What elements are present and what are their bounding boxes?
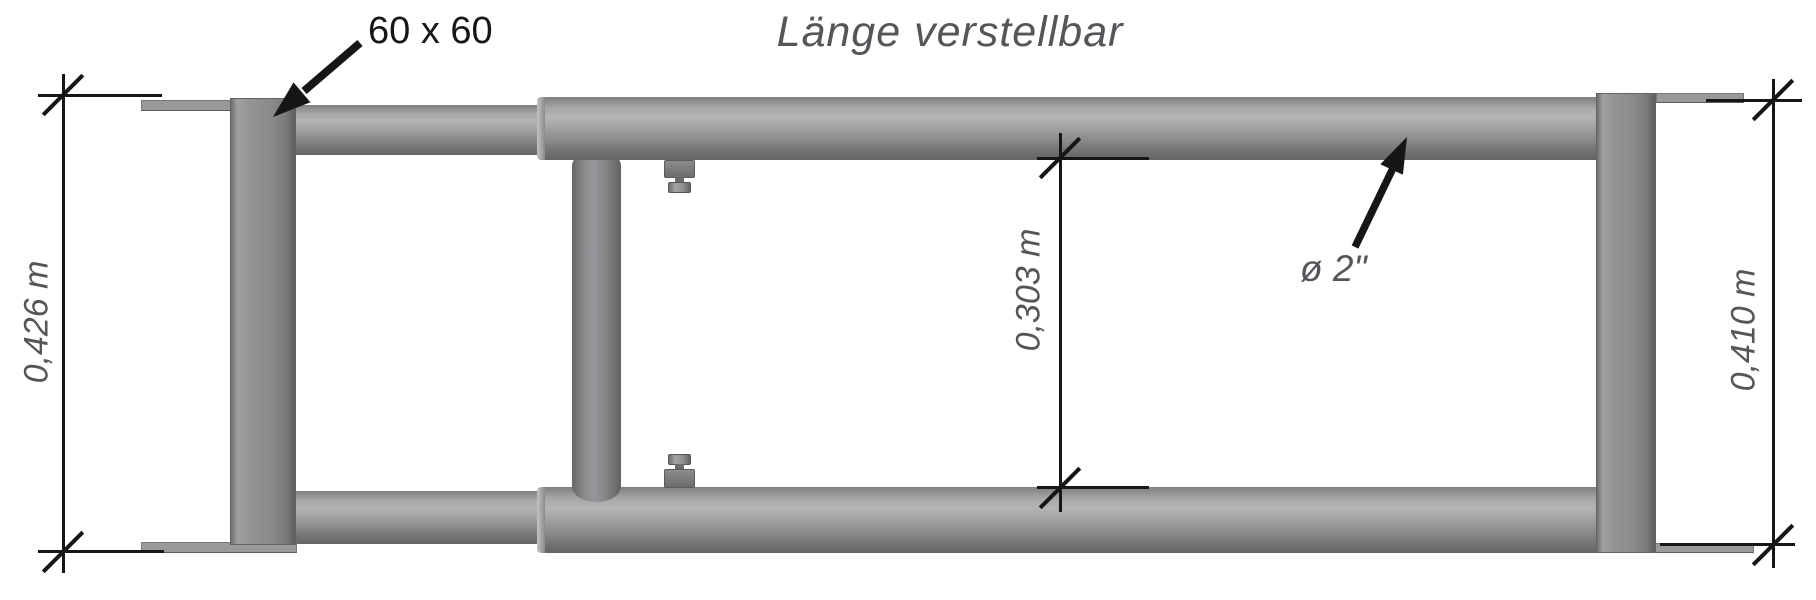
tube-diameter-arrow-shaft <box>1355 164 1395 247</box>
bottom-sleeve-end-cap <box>537 487 545 553</box>
bottom-rail-sleeve <box>537 487 1596 553</box>
post-size-arrow <box>240 38 420 134</box>
right-post <box>1596 93 1656 553</box>
dim-middle-label: 0,303 m <box>1010 229 1049 352</box>
tube-diameter-arrow <box>1335 120 1430 255</box>
dim-left-line <box>62 74 65 573</box>
technical-drawing-canvas: Länge verstellbar 60 x 60 ø 2" 0,426 m <box>0 0 1816 600</box>
dim-right-label: 0,410 m <box>1725 269 1764 392</box>
dim-left-label: 0,426 m <box>18 261 57 384</box>
top-clamp-bracket <box>664 160 695 178</box>
dim-middle-line <box>1059 133 1062 512</box>
dim-right-ext-top <box>1706 99 1802 102</box>
diagram-title: Länge verstellbar <box>700 8 1200 57</box>
post-size-arrow-shaft <box>304 43 360 91</box>
top-sleeve-end-cap <box>537 97 545 160</box>
left-post-top-foot <box>141 100 233 111</box>
dim-left-ext-bottom <box>38 550 164 553</box>
vertical-connector-tube <box>572 150 621 502</box>
top-clamp-screw <box>668 182 691 193</box>
dim-middle-ext-bottom <box>1037 486 1149 489</box>
left-post <box>230 98 296 545</box>
tube-diameter-arrowhead-icon <box>1380 137 1407 175</box>
bottom-rail-inner-tube <box>296 491 546 544</box>
dim-left-ext-top <box>38 94 162 97</box>
dim-right-line <box>1772 79 1775 568</box>
bottom-clamp-bracket <box>664 469 695 488</box>
